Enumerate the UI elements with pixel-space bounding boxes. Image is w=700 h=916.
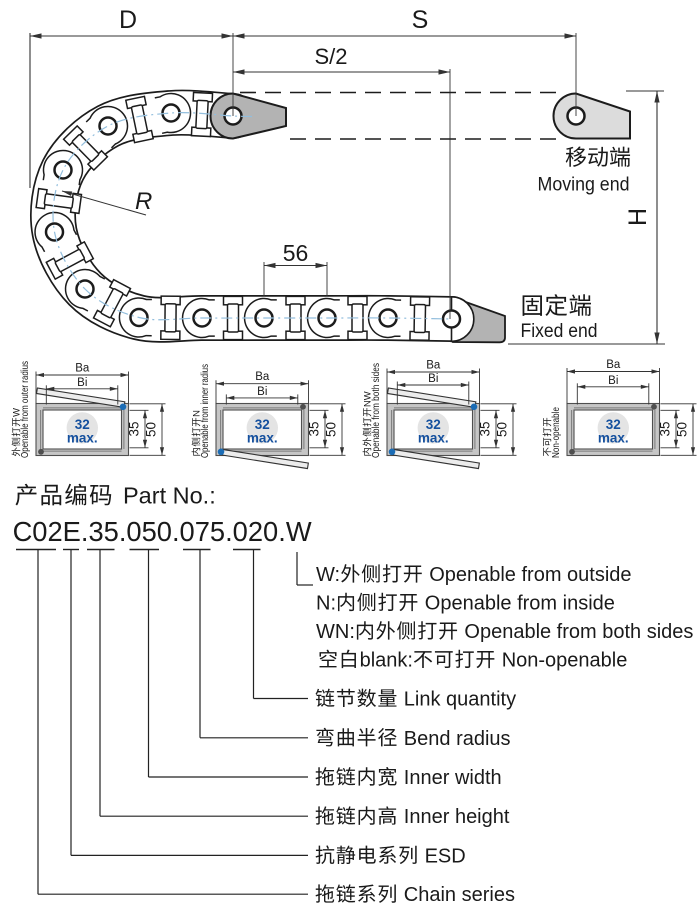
svg-text:50: 50 xyxy=(495,422,510,437)
svg-text:56: 56 xyxy=(283,240,309,266)
svg-text:50: 50 xyxy=(144,422,159,437)
svg-text:Inner width: Inner width xyxy=(404,767,502,789)
svg-text:Bi: Bi xyxy=(428,373,438,385)
svg-text:Moving end: Moving end xyxy=(538,174,630,196)
svg-text:N:: N: xyxy=(316,593,336,615)
svg-text:max.: max. xyxy=(247,431,278,446)
svg-text:ESD: ESD xyxy=(425,845,466,867)
svg-text:35: 35 xyxy=(307,421,322,436)
svg-text:blank:: blank: xyxy=(360,650,413,672)
svg-text:WN:: WN: xyxy=(316,621,355,643)
svg-text:D: D xyxy=(119,6,137,34)
svg-text:Openable from inside: Openable from inside xyxy=(425,593,615,615)
svg-text:Bend radius: Bend radius xyxy=(404,728,511,750)
svg-text:Ba: Ba xyxy=(426,360,441,372)
svg-text:Bi: Bi xyxy=(257,386,267,398)
svg-text:Non-openable: Non-openable xyxy=(551,407,562,458)
svg-text:Inner height: Inner height xyxy=(404,806,510,828)
svg-text:C02E.35.050.075.020.W: C02E.35.050.075.020.W xyxy=(13,516,313,547)
svg-text:Openable from inner radius: Openable from inner radius xyxy=(200,364,211,458)
svg-text:H: H xyxy=(624,208,652,226)
svg-text:Part No.:: Part No.: xyxy=(123,483,216,509)
svg-text:35: 35 xyxy=(658,421,673,436)
svg-text:max.: max. xyxy=(418,431,449,446)
svg-text:R: R xyxy=(135,188,152,215)
svg-text:Openable from outside: Openable from outside xyxy=(429,564,631,586)
svg-text:Ba: Ba xyxy=(606,359,621,371)
svg-text:50: 50 xyxy=(324,422,339,437)
svg-text:S/2: S/2 xyxy=(314,44,347,69)
svg-text:max.: max. xyxy=(67,431,98,446)
svg-text:35: 35 xyxy=(127,421,142,436)
svg-text:Non-openable: Non-openable xyxy=(502,650,628,672)
svg-text:W:: W: xyxy=(316,564,340,586)
svg-text:S: S xyxy=(412,6,429,34)
svg-text:Bi: Bi xyxy=(608,375,618,387)
svg-text:Bi: Bi xyxy=(77,377,87,389)
svg-text:max.: max. xyxy=(598,431,629,446)
svg-text:Chain series: Chain series xyxy=(404,884,515,906)
svg-text:Ba: Ba xyxy=(75,363,90,375)
svg-text:Openable from both sides: Openable from both sides xyxy=(464,621,693,643)
svg-text:35: 35 xyxy=(478,421,493,436)
svg-text:Link quantity: Link quantity xyxy=(404,689,516,711)
svg-text:Openable from outer radius: Openable from outer radius xyxy=(20,361,31,458)
svg-text:50: 50 xyxy=(675,422,690,437)
svg-text:Fixed end: Fixed end xyxy=(521,320,598,342)
svg-text:Ba: Ba xyxy=(255,371,270,383)
svg-text:Openable from both sides: Openable from both sides xyxy=(371,363,382,458)
